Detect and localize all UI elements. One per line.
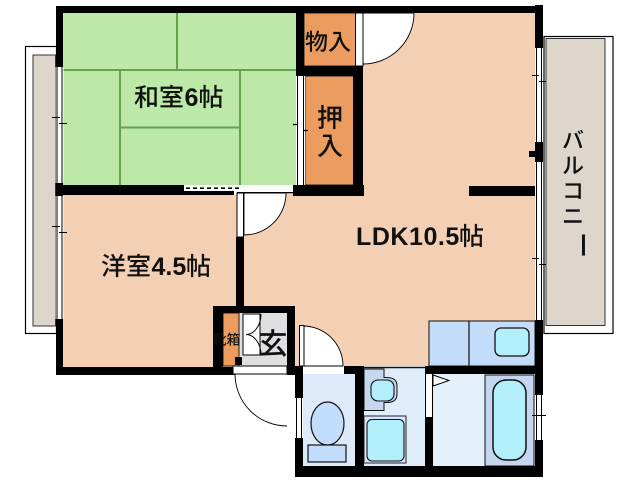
svg-text:4.5: 4.5	[152, 253, 187, 281]
svg-text:6: 6	[185, 84, 199, 112]
svg-text:LDK10.5: LDK10.5	[356, 223, 460, 251]
